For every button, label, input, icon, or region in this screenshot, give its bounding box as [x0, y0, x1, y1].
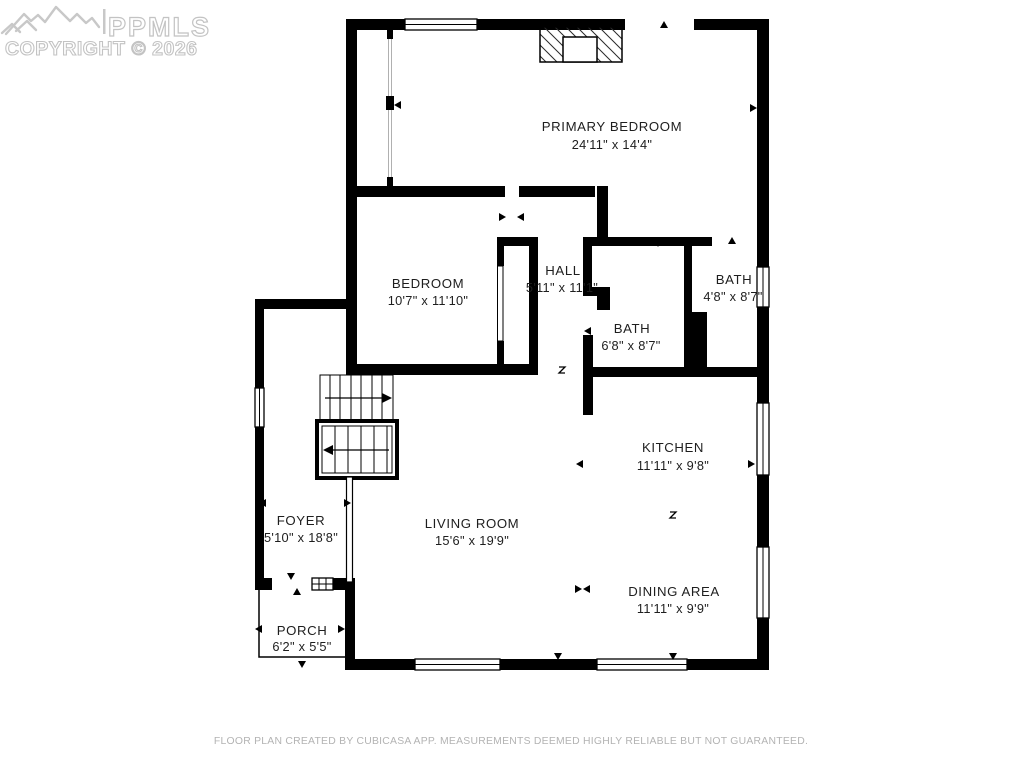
- window-dining-bottom: [597, 659, 687, 670]
- room-label-foyer: FOYER 5'10" x 18'8": [264, 513, 338, 545]
- floor-plan-page: PPMLS COPYRIGHT © 2026: [0, 0, 1024, 767]
- closet-door: [498, 266, 504, 341]
- room-dims: 15'6" x 19'9": [435, 533, 509, 548]
- fireplace-chimney: [540, 27, 622, 62]
- room-name: PRIMARY BEDROOM: [542, 119, 682, 134]
- room-label-bath: BATH 6'8" x 8'7": [601, 321, 660, 353]
- room-dims: 5'10" x 18'8": [264, 530, 338, 545]
- window-living-bottom: [415, 659, 500, 670]
- room-name: KITCHEN: [642, 440, 704, 455]
- room-name: HALL: [545, 263, 580, 278]
- room-label-bath-2: BATH 4'8" x 8'7": [703, 272, 762, 304]
- floor-plan-svg: PPMLS COPYRIGHT © 2026: [0, 0, 1024, 767]
- ppmls-mountains-logo-icon: [2, 7, 99, 34]
- footer-disclaimer: FLOOR PLAN CREATED BY CUBICASA APP. MEAS…: [214, 736, 808, 747]
- room-name: DINING AREA: [628, 584, 720, 599]
- room-dims: 11'11" x 9'9": [637, 601, 709, 616]
- room-dims: 5'11" x 11'1": [526, 280, 598, 295]
- watermark-divider: [103, 9, 106, 34]
- room-label-primary-bedroom: PRIMARY BEDROOM 24'11" x 14'4": [542, 119, 682, 152]
- room-name: BEDROOM: [392, 276, 464, 291]
- window-kitchen-right: [757, 403, 769, 475]
- room-dims: 24'11" x 14'4": [572, 137, 653, 152]
- room-dims: 11'11" x 9'8": [637, 458, 709, 473]
- walls: [255, 19, 769, 670]
- window-foyer-left: [255, 388, 264, 427]
- window-foyer-bottom: [312, 578, 333, 590]
- primary-closet-partition: [386, 30, 394, 186]
- room-dims: 4'8" x 8'7": [703, 289, 762, 304]
- room-name: BATH: [614, 321, 651, 336]
- copyright-text: COPYRIGHT © 2026: [5, 38, 198, 60]
- room-label-dining-area: DINING AREA 11'11" x 9'9": [628, 584, 720, 616]
- room-name: BATH: [716, 272, 753, 287]
- room-label-bedroom: BEDROOM 10'7" x 11'10": [388, 276, 469, 308]
- room-label-living-room: LIVING ROOM 15'6" x 19'9": [425, 516, 520, 548]
- room-name: PORCH: [277, 623, 328, 638]
- room-dims: 6'2" x 5'5": [272, 639, 331, 654]
- staircase: [317, 375, 397, 478]
- room-dims: 10'7" x 11'10": [388, 293, 469, 308]
- room-name: LIVING ROOM: [425, 516, 520, 531]
- window-dining-right: [757, 547, 769, 618]
- room-label-kitchen: KITCHEN 11'11" x 9'8": [637, 440, 709, 473]
- room-dims: 6'8" x 8'7": [601, 338, 660, 353]
- window-primary-top: [405, 19, 477, 30]
- room-name: FOYER: [277, 513, 325, 528]
- room-label-porch: PORCH 6'2" x 5'5": [272, 623, 331, 654]
- watermark: PPMLS COPYRIGHT © 2026: [2, 7, 211, 60]
- stair-handrail: [347, 477, 353, 582]
